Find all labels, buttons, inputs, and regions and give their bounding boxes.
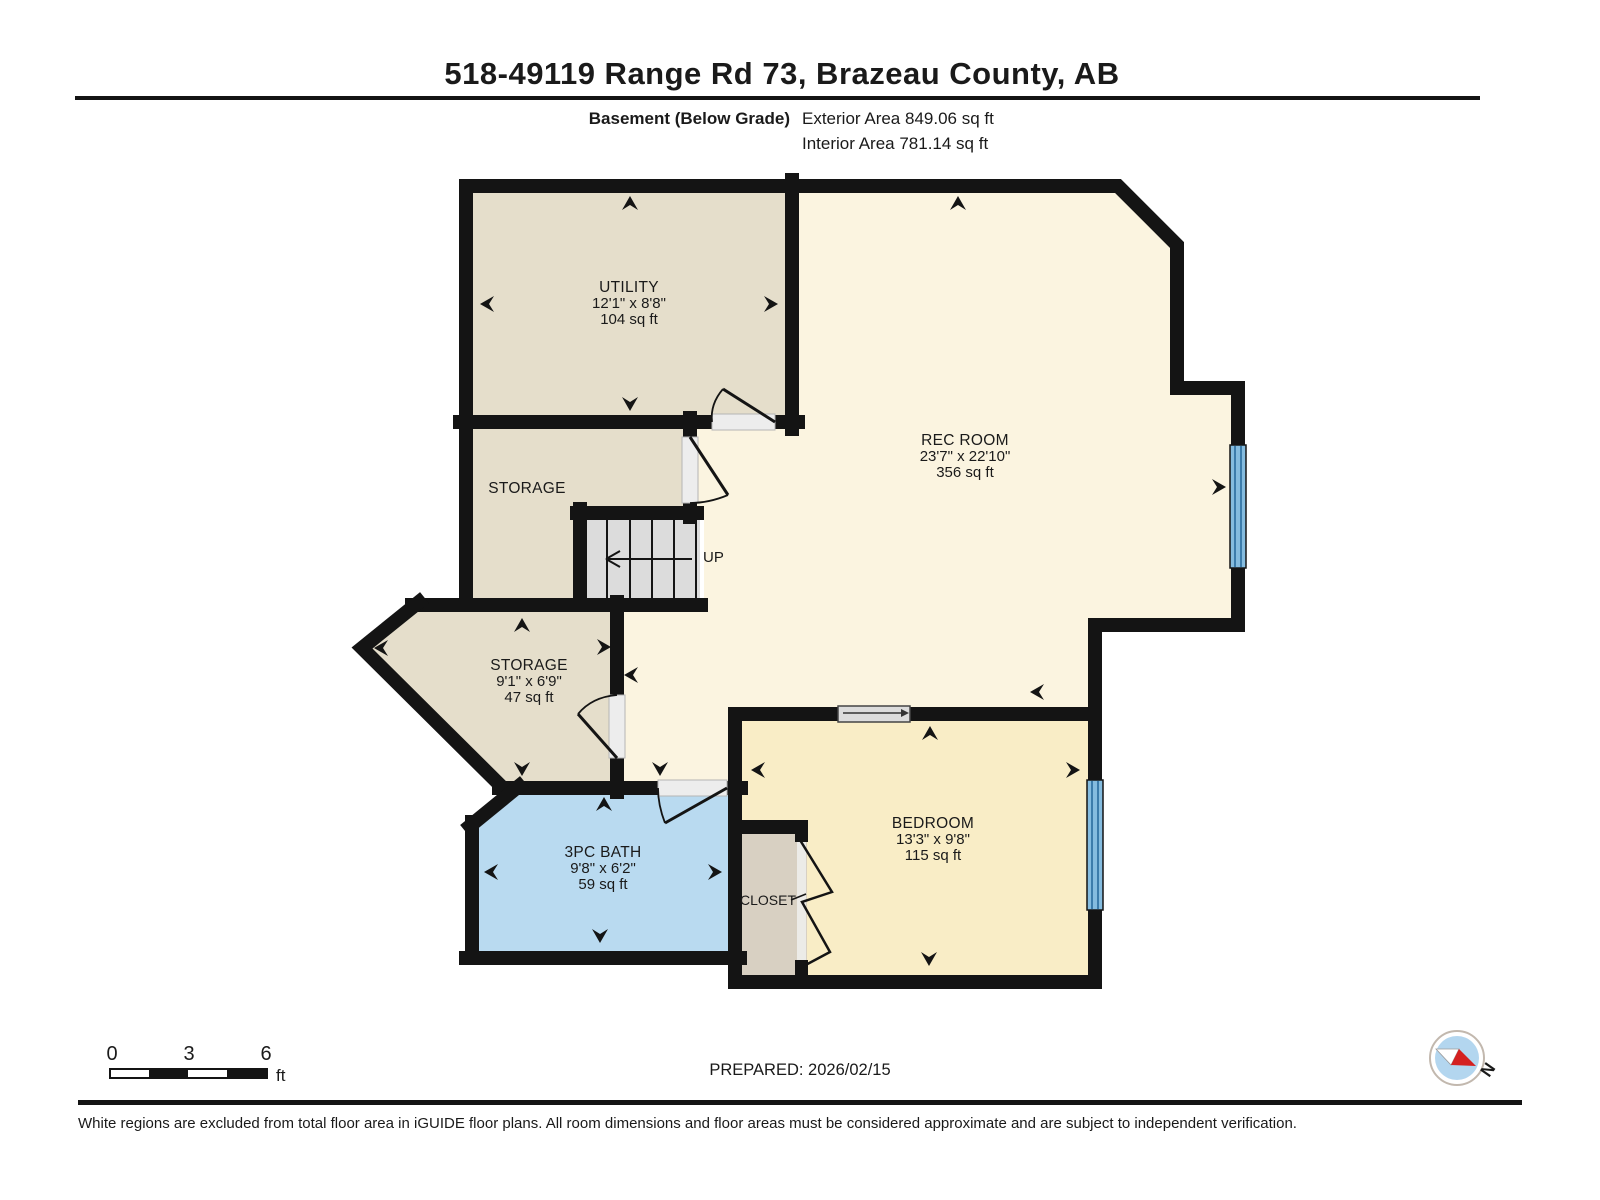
interior-area: Interior Area 781.14 sq ft (802, 134, 988, 153)
bath-area: 59 sq ft (578, 876, 628, 893)
rec-room-area: 356 sq ft (936, 464, 994, 481)
page-title: 518-49119 Range Rd 73, Brazeau County, A… (444, 56, 1119, 91)
scale-unit: ft (276, 1066, 286, 1085)
storage-lower-door-opening (609, 695, 625, 758)
utility-dims: 12'1" x 8'8" (592, 295, 666, 312)
room-fills (362, 186, 1238, 982)
utility-name: UTILITY (599, 279, 659, 296)
storage-lower-area: 47 sq ft (504, 689, 554, 706)
bedroom-dims: 13'3" x 9'8" (896, 831, 970, 848)
scale-tick-0: 0 (106, 1043, 117, 1065)
disclaimer-text: White regions are excluded from total fl… (78, 1115, 1297, 1132)
prepared-date: PREPARED: 2026/02/15 (709, 1061, 890, 1079)
stairs-up-label: UP (703, 549, 724, 566)
scale-bar: 0 3 6 ft (106, 1043, 285, 1085)
utility-label: UTILITY 12'1" x 8'8" 104 sq ft (592, 279, 666, 328)
footer: 0 3 6 ft PREPARED: 2026/02/15 N White re… (78, 1031, 1522, 1132)
closet-jamb-top (795, 827, 808, 842)
bath-name: 3PC BATH (564, 844, 641, 861)
storage-lower-fill (362, 605, 617, 788)
utility-area: 104 sq ft (600, 311, 658, 328)
storage-lower-name: STORAGE (490, 657, 568, 674)
bedroom-sliding-door (838, 706, 910, 722)
bedroom-area: 115 sq ft (905, 847, 962, 864)
bath-dims: 9'8" x 6'2" (570, 860, 636, 877)
storage-upper-name: STORAGE (488, 480, 566, 497)
scale-bar-segment (227, 1069, 267, 1078)
title-divider (75, 96, 1480, 100)
header: 518-49119 Range Rd 73, Brazeau County, A… (75, 56, 1480, 153)
rec-room-window (1230, 445, 1246, 568)
floorplan-page: 518-49119 Range Rd 73, Brazeau County, A… (0, 0, 1600, 1200)
footer-divider (78, 1100, 1522, 1105)
exterior-area: Exterior Area 849.06 sq ft (802, 109, 994, 128)
scale-bar-segment (149, 1069, 188, 1078)
bedroom-name: BEDROOM (892, 815, 974, 832)
floor-label: Basement (Below Grade) (589, 109, 790, 128)
compass: N (1430, 1031, 1499, 1085)
scale-tick-6: 6 (260, 1043, 271, 1065)
scale-tick-3: 3 (183, 1043, 194, 1065)
closet-name: CLOSET (740, 892, 796, 908)
bedroom-window (1087, 780, 1103, 910)
rec-room-dims: 23'7" x 22'10" (920, 448, 1011, 465)
floorplan-canvas: 518-49119 Range Rd 73, Brazeau County, A… (0, 0, 1600, 1200)
rec-room-name: REC ROOM (921, 432, 1009, 449)
storage-lower-dims: 9'1" x 6'9" (496, 673, 562, 690)
